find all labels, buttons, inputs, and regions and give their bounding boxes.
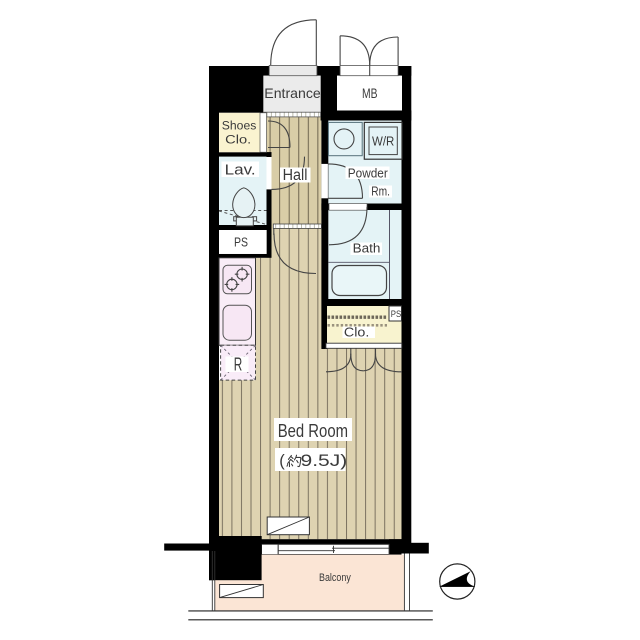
svg-text:W/R: W/R xyxy=(372,134,394,148)
svg-text:Entrance: Entrance xyxy=(264,85,321,101)
svg-text:Lav.: Lav. xyxy=(225,162,256,179)
svg-text:Rm.: Rm. xyxy=(371,185,390,199)
svg-text:Bed Room: Bed Room xyxy=(278,421,348,441)
svg-text:Powder: Powder xyxy=(348,166,388,180)
svg-text:Hall: Hall xyxy=(283,167,308,184)
svg-text:MB: MB xyxy=(362,86,378,101)
svg-text:R: R xyxy=(234,354,243,374)
svg-text:Clo.: Clo. xyxy=(225,135,251,147)
svg-text:(: ( xyxy=(279,452,285,470)
svg-text:Shoes: Shoes xyxy=(222,121,257,133)
svg-text:Bath: Bath xyxy=(353,241,381,256)
svg-text:PS: PS xyxy=(391,309,401,320)
svg-text:9.5J): 9.5J) xyxy=(301,452,348,470)
svg-text:Balcony: Balcony xyxy=(319,572,351,584)
svg-text:Clo.: Clo. xyxy=(344,326,369,340)
svg-text:PS: PS xyxy=(234,234,248,249)
